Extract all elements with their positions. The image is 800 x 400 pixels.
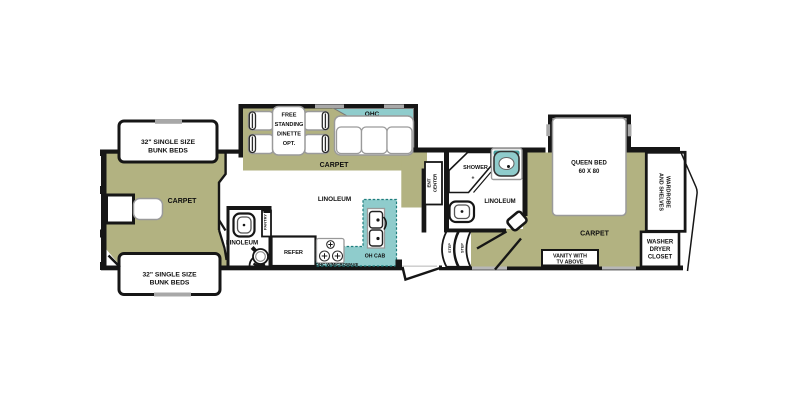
svg-text:OPT.: OPT. (283, 141, 296, 147)
svg-text:ENT: ENT (427, 178, 432, 187)
svg-text:BUNK BEDS: BUNK BEDS (150, 280, 190, 287)
svg-text:PANTRY: PANTRY (263, 214, 268, 230)
svg-text:TV ABOVE: TV ABOVE (557, 260, 584, 266)
svg-text:60 X 80: 60 X 80 (579, 169, 600, 175)
svg-text:LINOLEUM: LINOLEUM (484, 199, 515, 205)
svg-text:STEP: STEP (461, 243, 465, 253)
svg-text:+: + (472, 176, 475, 182)
svg-text:WASHER: WASHER (647, 240, 674, 246)
svg-text:CENTER: CENTER (433, 173, 438, 192)
svg-text:AND SHELVES: AND SHELVES (658, 173, 664, 211)
svg-text:STANDING: STANDING (275, 122, 304, 128)
svg-text:WARDROBE: WARDROBE (665, 176, 671, 208)
svg-text:OHC W/MICROWAVE: OHC W/MICROWAVE (316, 262, 359, 267)
svg-text:BUNK BEDS: BUNK BEDS (148, 148, 188, 155)
svg-text:QUEEN BED: QUEEN BED (571, 161, 607, 167)
svg-text:REFER: REFER (284, 250, 303, 256)
svg-text:32" SINGLE SIZE: 32" SINGLE SIZE (142, 272, 197, 279)
svg-text:32" SINGLE SIZE: 32" SINGLE SIZE (141, 139, 196, 146)
svg-text:LINOLEUM: LINOLEUM (318, 196, 351, 203)
svg-text:CARPET: CARPET (580, 231, 610, 238)
svg-text:CARPET: CARPET (168, 198, 198, 205)
svg-text:SHOWER: SHOWER (463, 165, 488, 171)
svg-text:DINETTE: DINETTE (277, 132, 301, 138)
svg-text:DRYER: DRYER (650, 247, 671, 253)
svg-text:CARPET: CARPET (320, 162, 350, 169)
svg-text:CLOSET: CLOSET (648, 255, 673, 261)
svg-text:LINOLEUM: LINOLEUM (226, 240, 258, 247)
svg-text:OH CAB: OH CAB (365, 254, 386, 260)
svg-text:STEP: STEP (448, 243, 452, 253)
svg-text:FREE: FREE (282, 113, 297, 119)
